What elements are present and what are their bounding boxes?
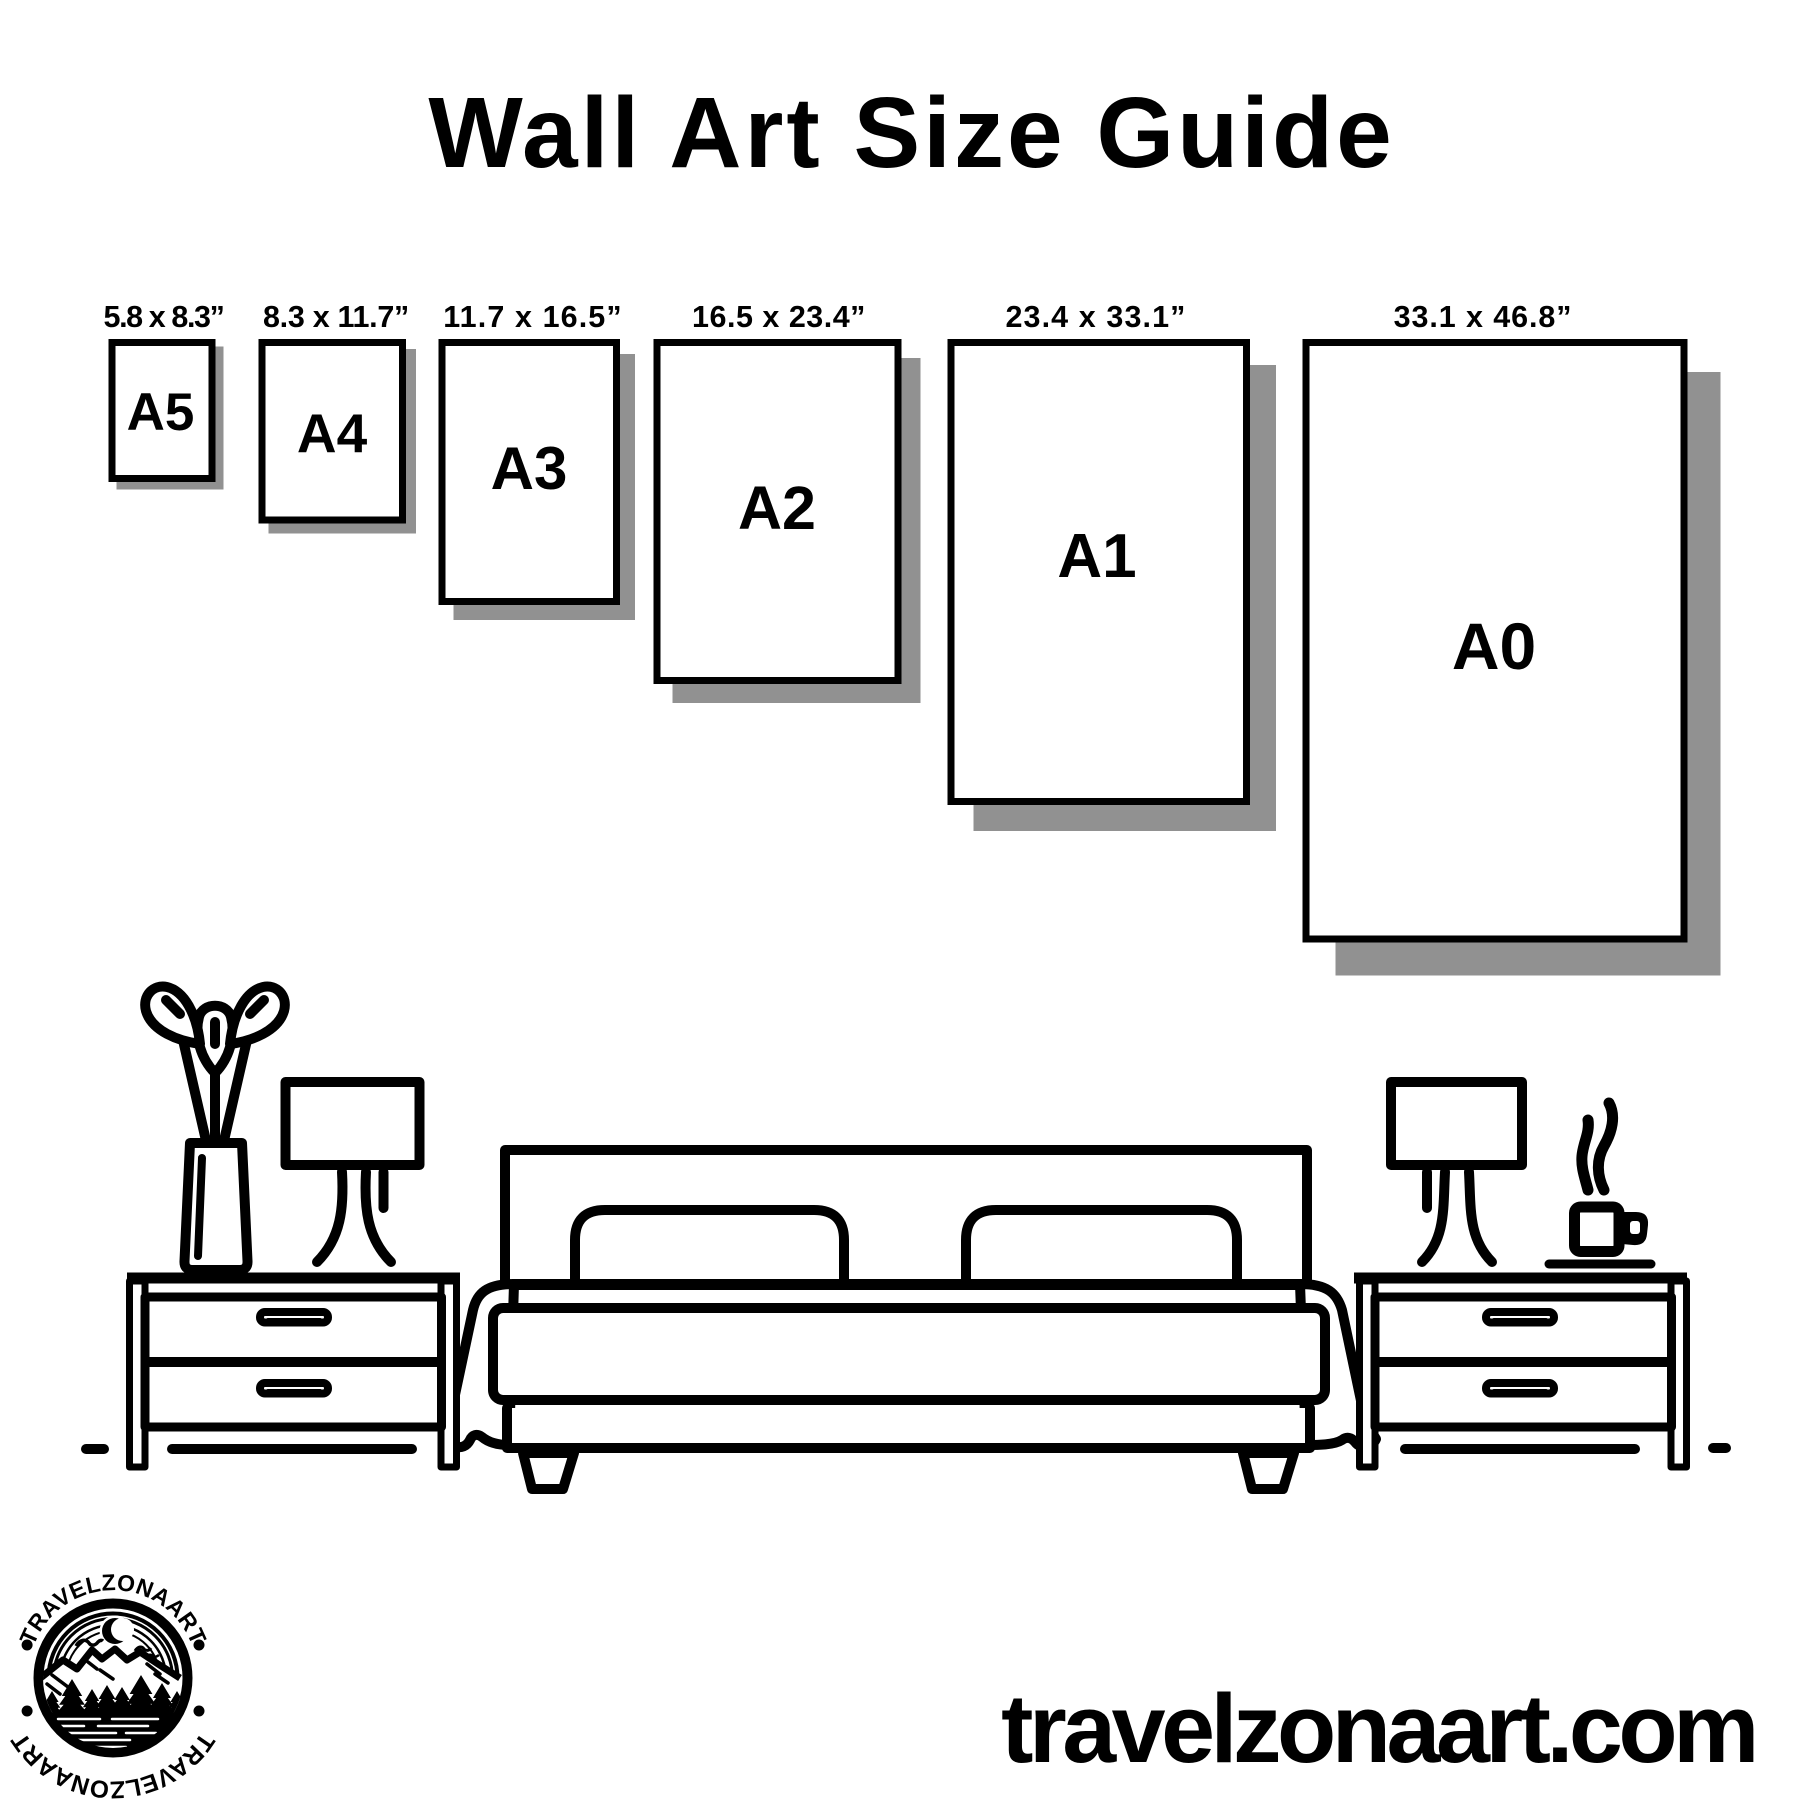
svg-text:23.4 x 33.1”: 23.4 x 33.1” <box>1005 300 1186 334</box>
svg-text:A2: A2 <box>738 474 816 542</box>
svg-text:A4: A4 <box>297 402 368 464</box>
svg-text:A0: A0 <box>1452 609 1536 683</box>
svg-text:Wall Art Size Guide: Wall Art Size Guide <box>428 77 1394 189</box>
svg-text:33.1 x 46.8”: 33.1 x 46.8” <box>1394 300 1573 334</box>
svg-text:A5: A5 <box>127 383 195 442</box>
svg-text:A3: A3 <box>491 435 568 502</box>
svg-text:11.7 x 16.5”: 11.7 x 16.5” <box>443 300 622 334</box>
svg-text:5.8 x 8.3”: 5.8 x 8.3” <box>104 300 224 334</box>
svg-text:A1: A1 <box>1057 522 1136 591</box>
svg-text:16.5 x 23.4”: 16.5 x 23.4” <box>692 300 866 334</box>
svg-text:8.3 x 11.7”: 8.3 x 11.7” <box>263 300 409 334</box>
svg-text:travelzonaart.com: travelzonaart.com <box>1001 1674 1755 1783</box>
